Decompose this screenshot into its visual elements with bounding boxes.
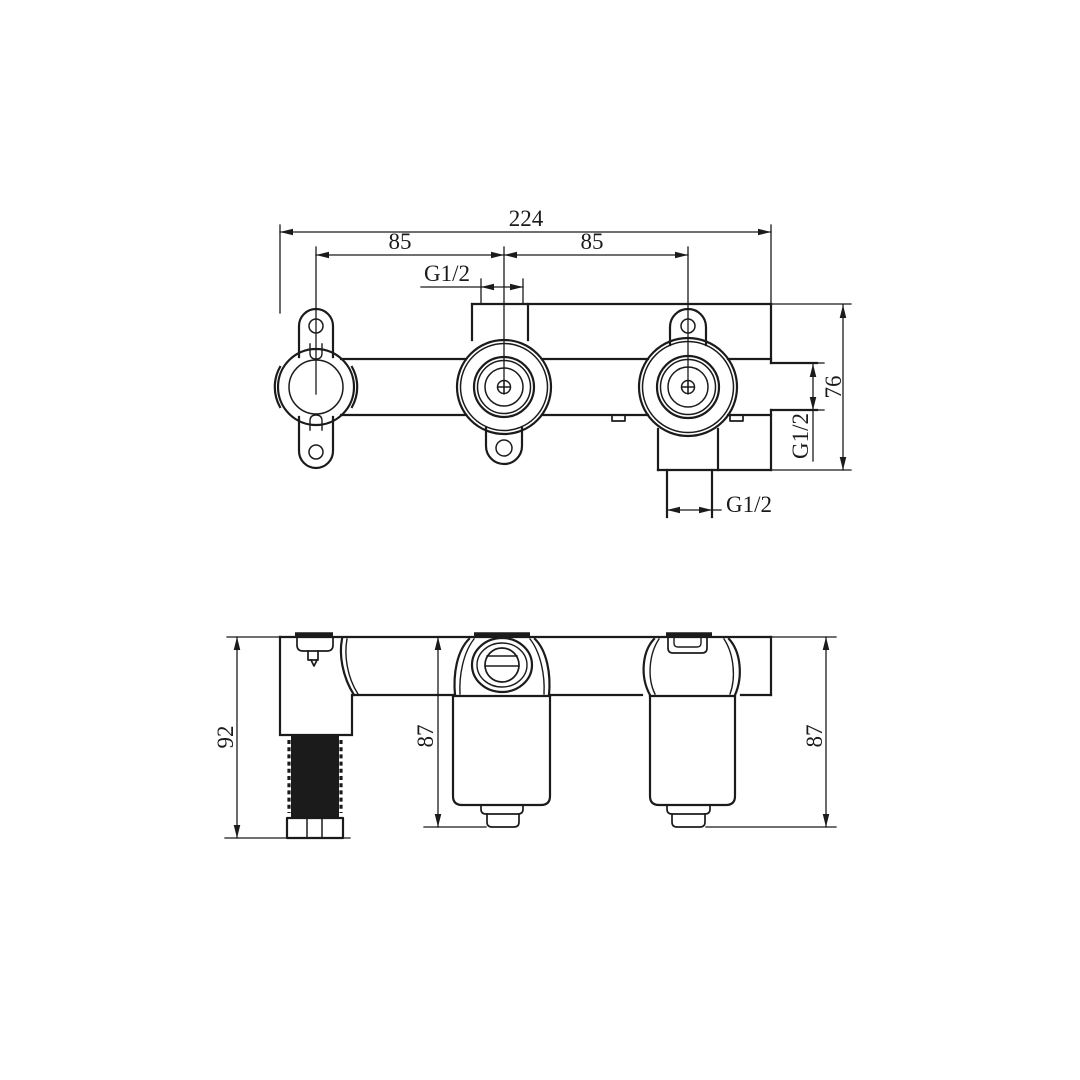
dim-label-bottom-port-thread: G1/2 bbox=[726, 492, 772, 517]
right-valve-screw-cross bbox=[683, 382, 694, 393]
right-outlet-nipple bbox=[672, 814, 705, 827]
left-block-clip bbox=[297, 637, 333, 651]
dim-label-overall-width: 224 bbox=[509, 206, 544, 231]
left-mount-block bbox=[280, 637, 358, 838]
right-clip-inner bbox=[674, 637, 701, 647]
center-union-slot bbox=[485, 656, 519, 666]
front-view: 224 85 85 G1/2 76 G1/2 G1/2 bbox=[275, 206, 851, 517]
crossbar-profile bbox=[354, 637, 771, 695]
faucet-valve-technical-drawing: 224 85 85 G1/2 76 G1/2 G1/2 bbox=[0, 0, 1080, 1080]
side-view-top-edge bbox=[227, 635, 836, 638]
side-port-stub bbox=[771, 363, 817, 410]
center-union-ring-outer bbox=[472, 638, 532, 692]
right-body-outline bbox=[650, 696, 735, 805]
right-fillet-left-inner bbox=[650, 639, 659, 694]
left-block-pin bbox=[308, 651, 318, 660]
left-valve-bottom-lug-hole bbox=[309, 445, 323, 459]
center-body-outline bbox=[453, 696, 550, 805]
manifold-body-outline bbox=[341, 304, 817, 517]
left-valve-bottom-pin bbox=[310, 415, 322, 430]
right-fillet-right-inner bbox=[724, 639, 733, 694]
dim-label-center-depth: 87 bbox=[413, 725, 438, 748]
right-cartridge bbox=[644, 637, 740, 827]
mounting-nut-flats bbox=[307, 818, 322, 838]
dim-label-side-port-thread: G1/2 bbox=[788, 413, 813, 459]
center-valve-bottom-lug-hole bbox=[496, 440, 512, 456]
technical-drawing-sheet: 224 85 85 G1/2 76 G1/2 G1/2 bbox=[0, 0, 1080, 1080]
side-view: 92 87 87 bbox=[213, 635, 836, 839]
dim-label-right-spacing: 85 bbox=[581, 229, 604, 254]
dim-label-left-spacing: 85 bbox=[389, 229, 412, 254]
top-port-stub bbox=[472, 304, 528, 340]
center-union-bore bbox=[485, 648, 519, 682]
front-view-dimension-lines bbox=[280, 232, 843, 510]
center-outlet-collar bbox=[481, 805, 523, 814]
threaded-rod bbox=[291, 735, 339, 818]
left-block-pin-tip bbox=[311, 660, 317, 666]
right-fillet-right-outer bbox=[729, 639, 740, 695]
dim-label-right-depth: 87 bbox=[802, 725, 827, 748]
front-view-extension-lines bbox=[280, 225, 851, 470]
right-outlet-collar bbox=[667, 805, 710, 814]
center-outlet-nipple bbox=[487, 814, 519, 827]
center-cartridge bbox=[453, 638, 550, 827]
mounting-nut bbox=[287, 818, 343, 838]
dim-label-body-height: 76 bbox=[821, 376, 846, 399]
center-valve-screw-cross bbox=[499, 382, 510, 393]
dim-label-top-port-thread: G1/2 bbox=[424, 261, 470, 286]
dim-label-left-depth: 92 bbox=[213, 726, 238, 749]
